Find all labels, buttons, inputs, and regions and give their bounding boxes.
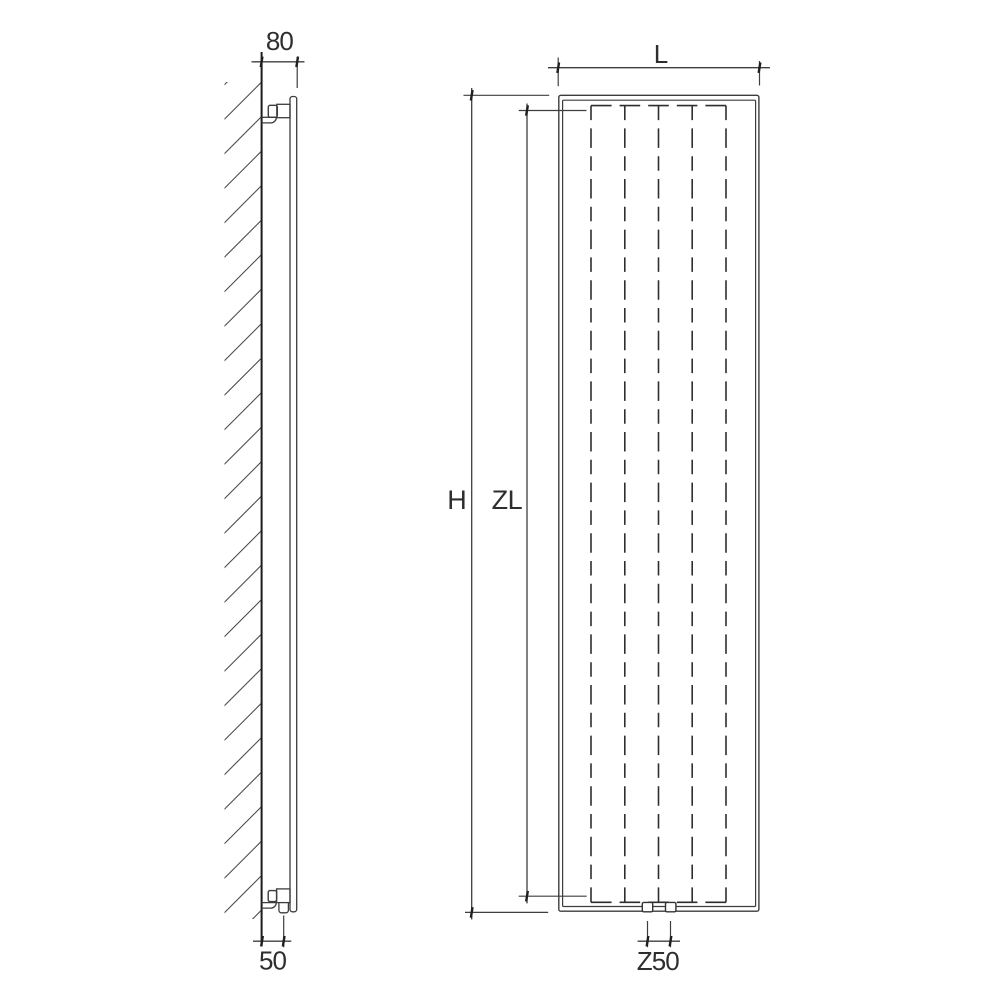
svg-text:Z50: Z50 xyxy=(637,946,680,976)
svg-text:L: L xyxy=(654,39,668,69)
svg-text:H: H xyxy=(447,485,467,515)
svg-text:80: 80 xyxy=(266,26,294,56)
svg-text:50: 50 xyxy=(259,945,287,975)
svg-text:ZL: ZL xyxy=(492,485,523,515)
